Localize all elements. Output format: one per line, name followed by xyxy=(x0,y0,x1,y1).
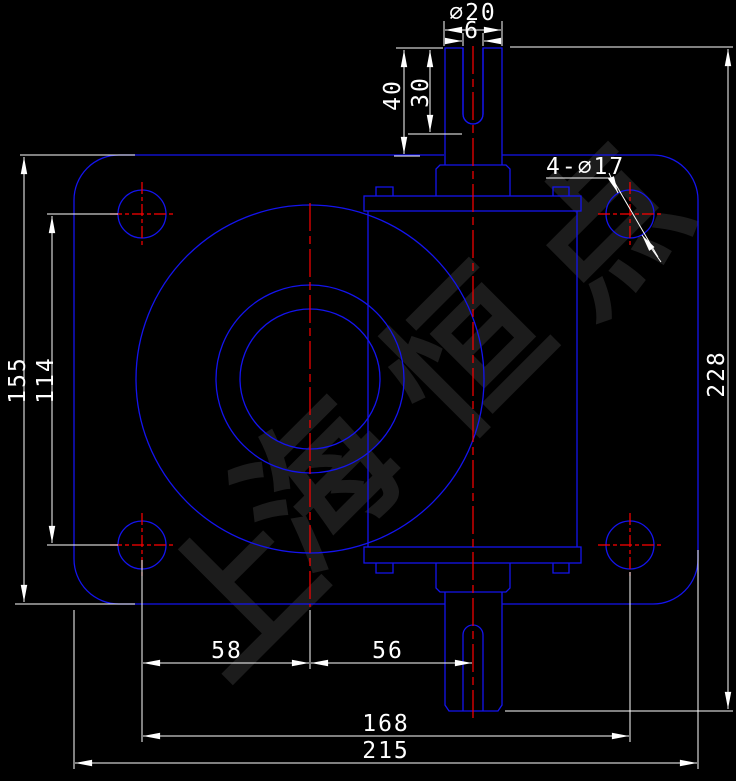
dim-label-hole-spacing-horizontal: 168 xyxy=(362,711,410,737)
dim-label-keyway-width: 6 xyxy=(464,18,480,44)
dim-label-flange-height: 155 xyxy=(5,356,31,404)
cad-viewport: 上 海 恒 点 xyxy=(0,0,736,781)
body-bottom-tab-left xyxy=(376,563,393,573)
dim-label-flange-width: 215 xyxy=(362,738,410,764)
dim-label-keyway-depth: 30 xyxy=(408,76,434,108)
dimensions: ⌀20 6 40 30 155 114 228 58 56 168 215 4-… xyxy=(5,0,733,769)
dim-label-overall-height: 228 xyxy=(704,350,730,398)
dim-label-center-offset-right: 56 xyxy=(372,638,404,664)
dim-label-hole-spacing-vertical: 114 xyxy=(33,356,59,404)
watermark: 上 海 恒 点 xyxy=(124,113,722,709)
dim-label-corner-holes: 4-⌀17 xyxy=(546,154,625,180)
dim-label-shaft-length: 40 xyxy=(380,79,406,111)
cad-drawing: 上 海 恒 点 xyxy=(0,0,736,781)
dim-label-center-offset-left: 58 xyxy=(211,638,243,664)
body-bottom-tab-right xyxy=(553,563,569,573)
body-top-tab-left xyxy=(376,187,393,196)
